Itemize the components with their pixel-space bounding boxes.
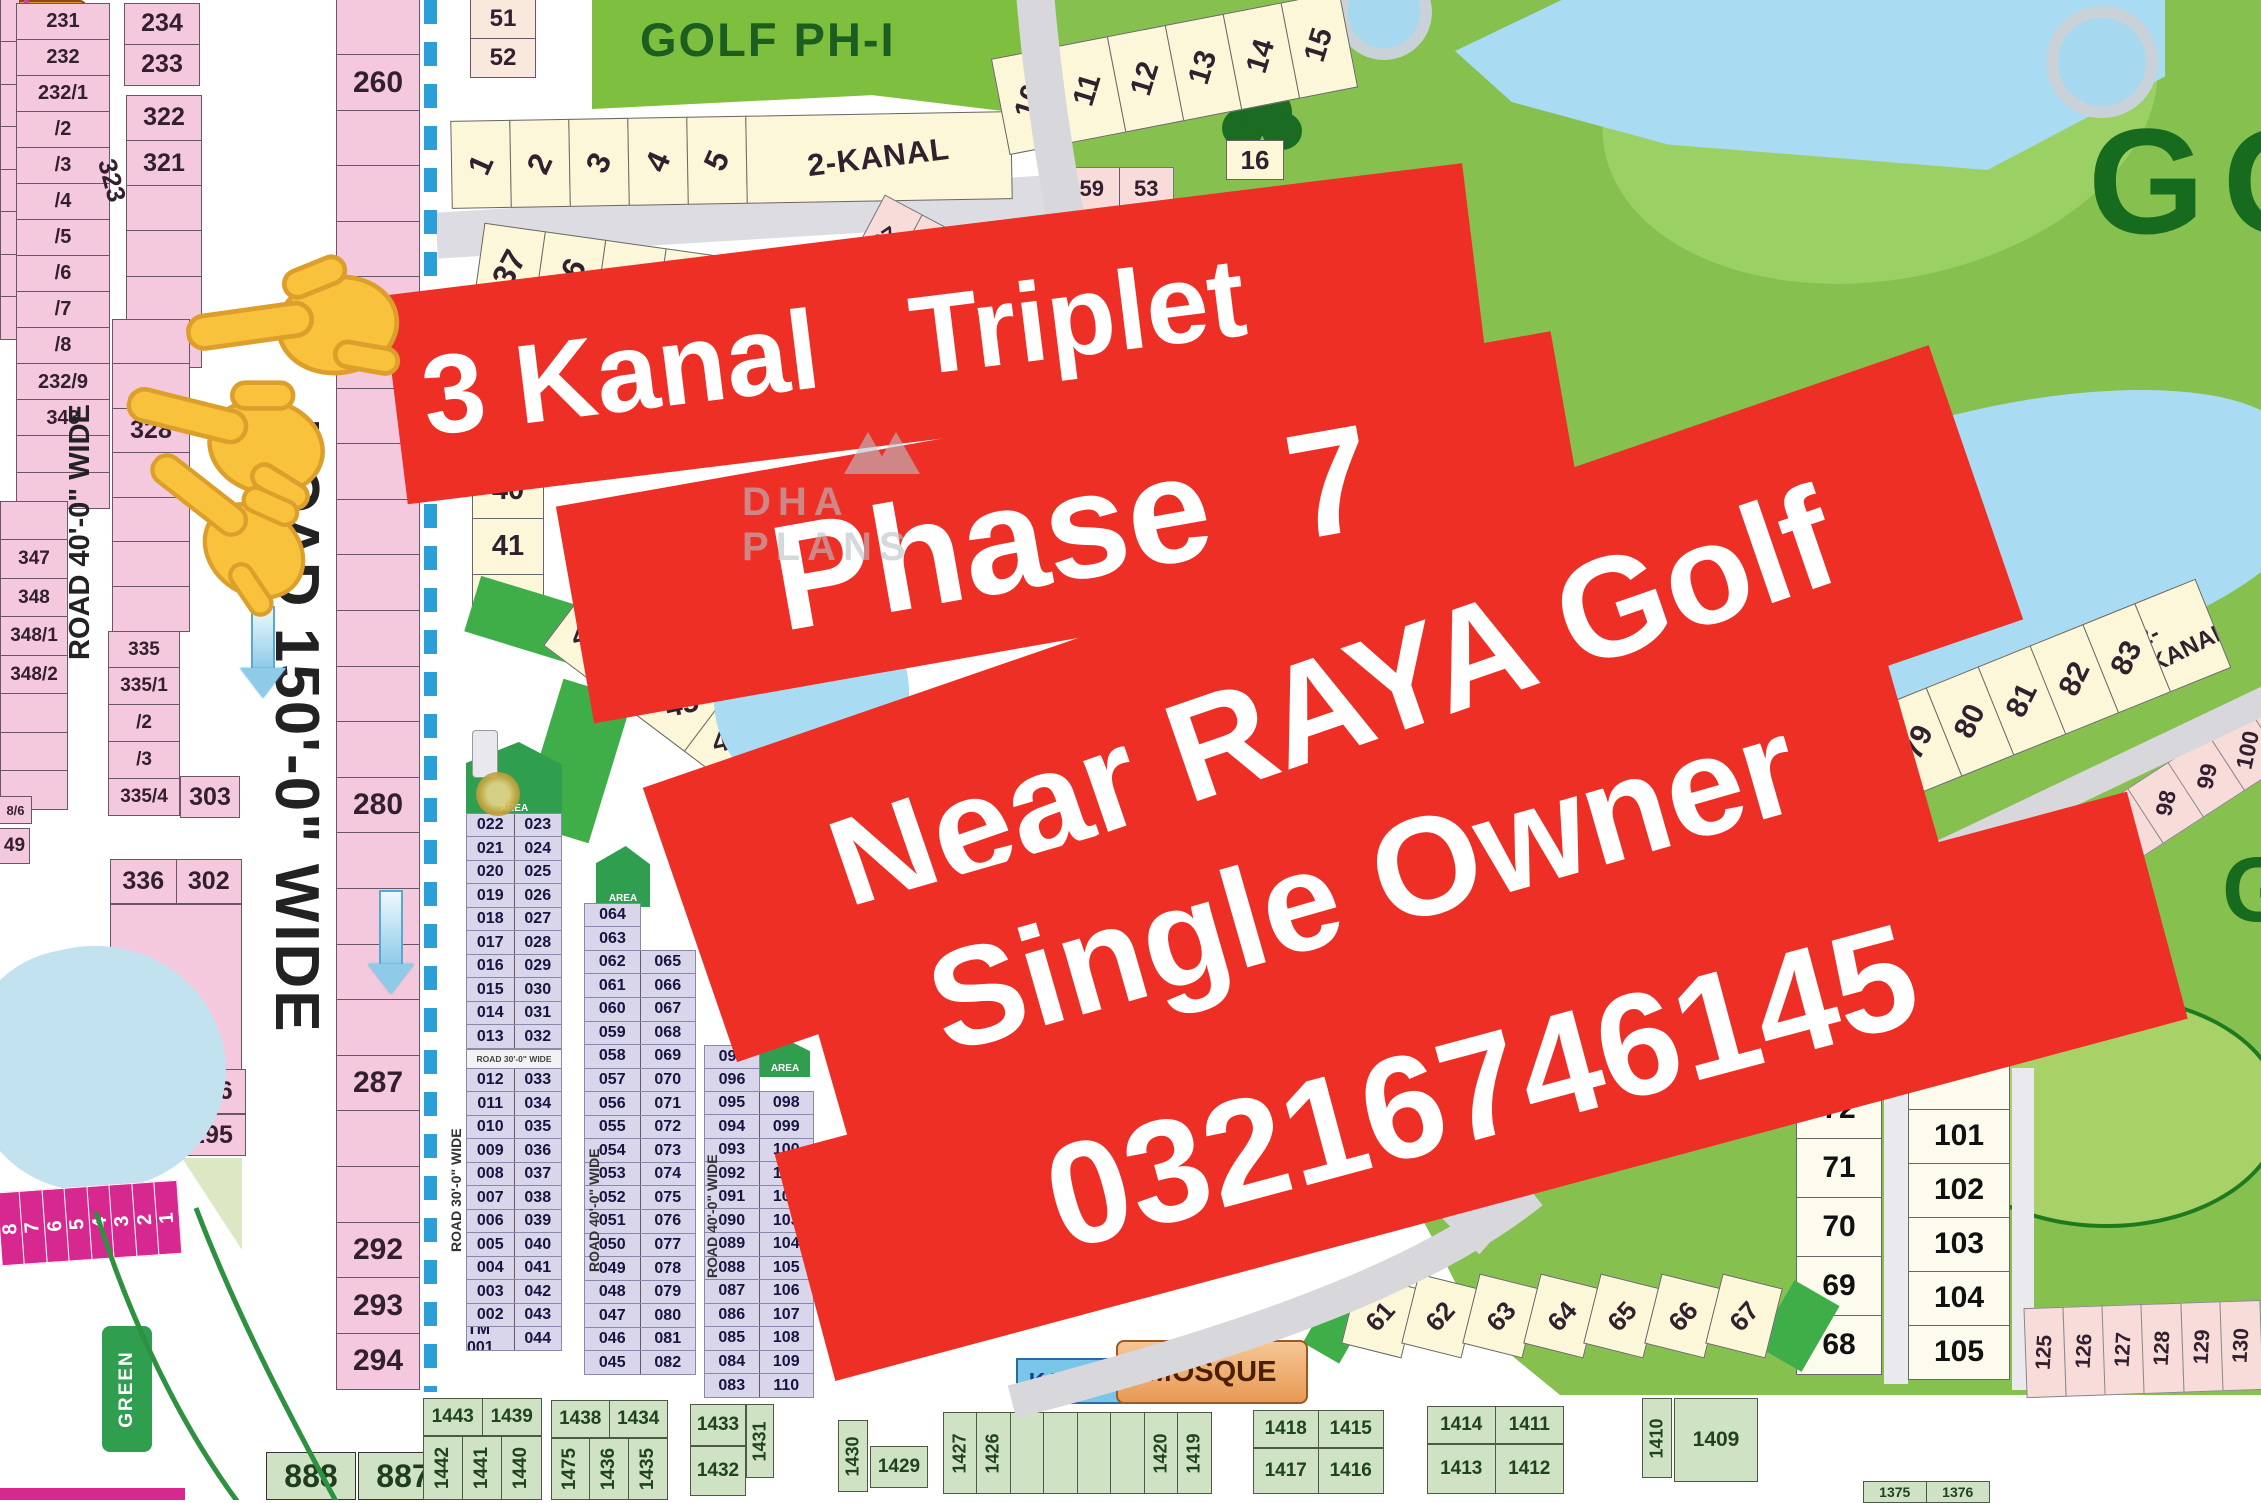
- plot-number-cell: 064: [584, 903, 641, 928]
- plot-1432: 1432: [690, 1446, 746, 1496]
- plot-number-pair: 011034: [466, 1091, 562, 1116]
- plot-cell: [0, 693, 68, 733]
- plot-cell: 1442: [423, 1436, 464, 1500]
- plot-cell: 128: [2141, 1303, 2185, 1394]
- watermark-logo-icon: [854, 432, 910, 474]
- plot-303: 303: [180, 776, 240, 818]
- plot-row-61-67: 61626364656667: [1350, 1280, 1775, 1352]
- plot-cell: 335/1: [108, 667, 180, 705]
- plot-cell: 1411: [1495, 1406, 1565, 1444]
- plot-number-pair: 083110: [704, 1373, 814, 1398]
- plot-number-pair: 002043: [466, 1303, 562, 1328]
- plot-number-pair: 048079: [584, 1280, 696, 1305]
- plot-cell: 260: [336, 54, 420, 111]
- plot-number-pair: 018027: [466, 907, 562, 932]
- plot-cell: 3: [568, 118, 630, 207]
- plot-number-pair: 046081: [584, 1327, 696, 1352]
- plot-cell: 1415: [1318, 1410, 1385, 1448]
- plot-number-pair: TM 001044: [466, 1326, 562, 1351]
- plot-cell: 1416: [1318, 1448, 1385, 1494]
- plot-cell: 4: [627, 117, 689, 206]
- plot-cell: 1438: [551, 1400, 611, 1438]
- golf-word-label-partial: GOLF: [2222, 838, 2261, 943]
- plot-cell: 321: [126, 140, 202, 187]
- plot-1431: 1431: [746, 1404, 774, 1478]
- plot-number-pair: 086107: [704, 1303, 814, 1328]
- plot-cell: [336, 832, 420, 889]
- plot-cell: 232/1: [16, 75, 110, 113]
- plot-cell: 348: [0, 578, 68, 618]
- plot-number-pair: 009036: [466, 1138, 562, 1163]
- plot-number-pair: 020025: [466, 860, 562, 885]
- plot-cell: 1427: [943, 1412, 978, 1494]
- plot-cell: 52: [470, 38, 536, 79]
- plot-cell: [336, 610, 420, 667]
- plot-1430: 1430: [838, 1420, 868, 1492]
- plot-strip-260: 260280287292293294: [336, 0, 420, 1390]
- kanal-site-label: KANAL: [1016, 1358, 1122, 1404]
- plot-map: GOLF GOLF 231232232/1/2/3/4/5/6/7/8232/9…: [0, 0, 2261, 1500]
- plot-cell: [1110, 1412, 1145, 1494]
- strip-group-2: 14381434: [552, 1400, 668, 1438]
- plot-number-pair: 095098: [704, 1091, 814, 1116]
- plot-column-347: 347348348/1348/2: [0, 502, 68, 810]
- green-belt: GREEN: [102, 1326, 152, 1452]
- plot-cell: [336, 999, 420, 1056]
- green-patch: [182, 1158, 242, 1250]
- plot-cell: 104: [1908, 1271, 2010, 1327]
- plot-number-pair: 019026: [466, 883, 562, 908]
- plot-cell: [112, 586, 190, 632]
- roundabout-icon: [476, 772, 520, 816]
- plot-cell: 127: [2102, 1304, 2146, 1395]
- plot-cell: [336, 0, 420, 56]
- plot-pair-336-302: 336302: [110, 860, 242, 904]
- plot-number-pair: 088105: [704, 1256, 814, 1281]
- plot-cell: /7: [16, 291, 110, 329]
- grid-header: AREA: [596, 846, 650, 907]
- watermark: DHA PLANS: [742, 432, 1022, 570]
- road-30-label: ROAD 30'-0" WIDE: [448, 1128, 464, 1252]
- plot-cell: [126, 185, 202, 232]
- plot-cell: 347: [0, 539, 68, 579]
- plot-row-125-130: 125126127128129130: [2025, 1300, 2261, 1398]
- plot-cell: 348/1: [0, 616, 68, 656]
- plot-cell: 102: [1908, 1163, 2010, 1219]
- strip-group-1: 144214411440: [424, 1436, 542, 1500]
- plot-number-pair: 007038: [466, 1185, 562, 1210]
- plot-cell: 71: [1796, 1138, 1882, 1199]
- plot-cell: 70: [1796, 1197, 1882, 1258]
- road-40-label: ROAD 40'-0" WIDE: [704, 1154, 720, 1278]
- plot-1410: 1410: [1642, 1398, 1672, 1478]
- road-30-bar: ROAD 30'-0" WIDE: [466, 1049, 562, 1069]
- plot-row-1-5: 12345 2-KANAL: [451, 111, 1012, 209]
- plot-cell: 1413: [1427, 1444, 1497, 1494]
- plot-cell: 1435: [628, 1438, 668, 1500]
- plot-cell: 348/2: [0, 655, 68, 695]
- plot-cell: 233: [124, 44, 200, 87]
- plot-cell: /2: [108, 704, 180, 742]
- number-grid-b-top: 064063: [584, 904, 641, 951]
- plot-cell: 293: [336, 1277, 420, 1334]
- plot-cell: 1418: [1253, 1410, 1320, 1448]
- number-grid-a1: 0220230210240200250190260180270170280160…: [466, 814, 562, 1049]
- plot-cell: 335/4: [108, 778, 180, 816]
- plot-cell: [336, 666, 420, 723]
- plot-number-pair: 010035: [466, 1115, 562, 1140]
- plot-number-pair: 059068: [584, 1021, 696, 1046]
- plot-cell: 66: [1644, 1274, 1722, 1359]
- plot-cell: 63: [1462, 1274, 1540, 1359]
- plot-number-cell: 063: [584, 926, 641, 951]
- plot-cell: [1043, 1412, 1078, 1494]
- plot-888: 888: [266, 1452, 356, 1500]
- plot-cell: 125: [2023, 1307, 2067, 1398]
- plot-pair: 336302: [110, 859, 242, 905]
- plot-pair-234: 234233: [124, 4, 200, 86]
- plot-number-pair: 062065: [584, 950, 696, 975]
- plot-number-pair: 014031: [466, 1001, 562, 1026]
- plot-number-pair: 017028: [466, 930, 562, 955]
- plot-cell: 51: [470, 0, 536, 39]
- plot-cell: 2: [509, 119, 571, 208]
- plot-column-335: 335335/1/2/3335/4: [108, 632, 180, 816]
- plot-number-pair: 087106: [704, 1279, 814, 1304]
- plot-number-pair: 008037: [466, 1162, 562, 1187]
- plot-cell: 1434: [609, 1400, 669, 1438]
- road-band: [1884, 1072, 1908, 1384]
- number-grid-c: 0950980940990931000921010911020901030891…: [704, 1092, 814, 1398]
- plot-cell: [0, 501, 68, 541]
- plot-1433: 1433: [690, 1404, 746, 1446]
- kanal-label: 2-KANAL: [745, 111, 1012, 204]
- plot-cell: [1077, 1412, 1112, 1494]
- plot-cell: 1440: [501, 1436, 542, 1500]
- plot-cell: /8: [16, 327, 110, 365]
- plot-number-pair: 047080: [584, 1303, 696, 1328]
- plot-cell: 232/9: [16, 363, 110, 401]
- number-grid-a2: 0120330110340100350090360080370070380060…: [466, 1069, 562, 1351]
- plot-pair-51-52: 5152: [470, 0, 536, 78]
- plot-cell: 232: [16, 39, 110, 77]
- plot-number-cell: 096: [704, 1068, 760, 1092]
- plot-cell: [1010, 1412, 1045, 1494]
- golf-word-label: GOLF: [2088, 95, 2261, 268]
- strip-group-5: 14181415: [1254, 1410, 1384, 1448]
- commercial-strip: 87654321: [0, 1180, 182, 1266]
- plot-number-pair: 005040: [466, 1232, 562, 1257]
- plot-number-pair: 015030: [466, 977, 562, 1002]
- plot-cell: 1436: [589, 1438, 629, 1500]
- plot-cell: [336, 554, 420, 611]
- plot-cell: 1419: [1177, 1412, 1212, 1494]
- plot-cell: 1439: [482, 1398, 543, 1436]
- plot-number-pair: 045082: [584, 1350, 696, 1375]
- plot-cell: [336, 165, 420, 222]
- plot-number-pair: 094099: [704, 1114, 814, 1139]
- plot-number-pair: 016029: [466, 954, 562, 979]
- plot-number-pair: 004041: [466, 1256, 562, 1281]
- plot-cell: 103: [1908, 1217, 2010, 1273]
- commercial-plot-cell: 1: [153, 1180, 182, 1255]
- strip-group-1: 14431439: [424, 1398, 542, 1436]
- plot-cell: [336, 110, 420, 167]
- sign-post: [472, 730, 498, 778]
- golf-ph1-band: GOLF PH-I: [592, 0, 1044, 116]
- plot-cell: 231: [16, 3, 110, 41]
- plot-1429: 1429: [870, 1446, 928, 1488]
- plot-cell: 280: [336, 777, 420, 834]
- plot-number-pair: 021024: [466, 836, 562, 861]
- plot-cell: 1: [450, 120, 512, 209]
- plot-cell: /3: [108, 741, 180, 779]
- plot-cell: 1412: [1495, 1444, 1565, 1494]
- plot-cell: 287: [336, 1055, 420, 1112]
- plot-cell: 1475: [551, 1438, 591, 1500]
- strip-group-4: 1427142614201419: [944, 1412, 1212, 1494]
- plot-label-323: 323: [94, 128, 130, 232]
- plot-cell: [336, 1166, 420, 1223]
- plot-cell: 1414: [1427, 1406, 1497, 1444]
- plot-1409: 1409: [1674, 1398, 1758, 1482]
- plot-number-pair: 060067: [584, 997, 696, 1022]
- plot-cell: [336, 1110, 420, 1167]
- plot-cell: [336, 721, 420, 778]
- plot-number-pair: 061066: [584, 973, 696, 998]
- plot-number-pair: 006039: [466, 1209, 562, 1234]
- plot-cell: 335: [108, 631, 180, 669]
- plot-cell: 1426: [976, 1412, 1011, 1494]
- plot-cell: 129: [2180, 1301, 2224, 1392]
- plot-number-pair: 013032: [466, 1024, 562, 1049]
- plot-number-pair: 084109: [704, 1350, 814, 1375]
- plot-cell: /6: [16, 255, 110, 293]
- plot-cell: 105: [1908, 1325, 2010, 1381]
- plot-cell: 1417: [1253, 1448, 1320, 1494]
- plot-cell: 234: [124, 3, 200, 46]
- road-40-label: ROAD 40'-0" WIDE: [586, 1148, 602, 1272]
- plot-cell: 101: [1908, 1109, 2010, 1165]
- road-40-label: ROAD 40'-0" WIDE: [64, 404, 97, 660]
- plot-number-pair: 012033: [466, 1068, 562, 1093]
- plot-cell: 322: [126, 95, 202, 142]
- plot-cell: 292: [336, 1222, 420, 1279]
- strip-group-6: 14131412: [1428, 1444, 1564, 1494]
- plot-cell: 1443: [423, 1398, 484, 1436]
- plot-number-pair: 058069: [584, 1044, 696, 1069]
- plot-cell: 294: [336, 1333, 420, 1390]
- mosque-site: MOSQUE: [1116, 1340, 1308, 1404]
- plot-cell: 130: [2220, 1300, 2261, 1391]
- plot-cell: 1441: [462, 1436, 503, 1500]
- plot-label: 49: [0, 828, 30, 864]
- plot-number-pair: 057070: [584, 1068, 696, 1093]
- plot-cell: 126: [2062, 1305, 2106, 1396]
- down-arrow-icon: [368, 890, 414, 994]
- plot-cell: 67: [1705, 1274, 1783, 1359]
- strip-group-5: 14171416: [1254, 1448, 1384, 1494]
- plot-number-pair: 022023: [466, 813, 562, 838]
- commercial-strip-partial: [0, 1488, 185, 1500]
- plot-number-pair: 085108: [704, 1326, 814, 1351]
- plot-cell: 1420: [1144, 1412, 1179, 1494]
- phase-dashed-line: [424, 0, 437, 1392]
- plot-number-pair: 055072: [584, 1115, 696, 1140]
- plot-cell: 41: [472, 518, 544, 576]
- plot-16: 16: [1226, 140, 1284, 180]
- strip-group-6: 14141411: [1428, 1406, 1564, 1444]
- plot-cell: [0, 732, 68, 772]
- plot-number-pair: 056071: [584, 1091, 696, 1116]
- plot-label: 8/6: [0, 796, 32, 824]
- strip-group-2: 147514361435: [552, 1438, 668, 1500]
- plot-column-101-105: 101102103104105: [1908, 1056, 2010, 1380]
- plot-number-pair: 003042: [466, 1279, 562, 1304]
- plot-cell: 5: [686, 116, 748, 205]
